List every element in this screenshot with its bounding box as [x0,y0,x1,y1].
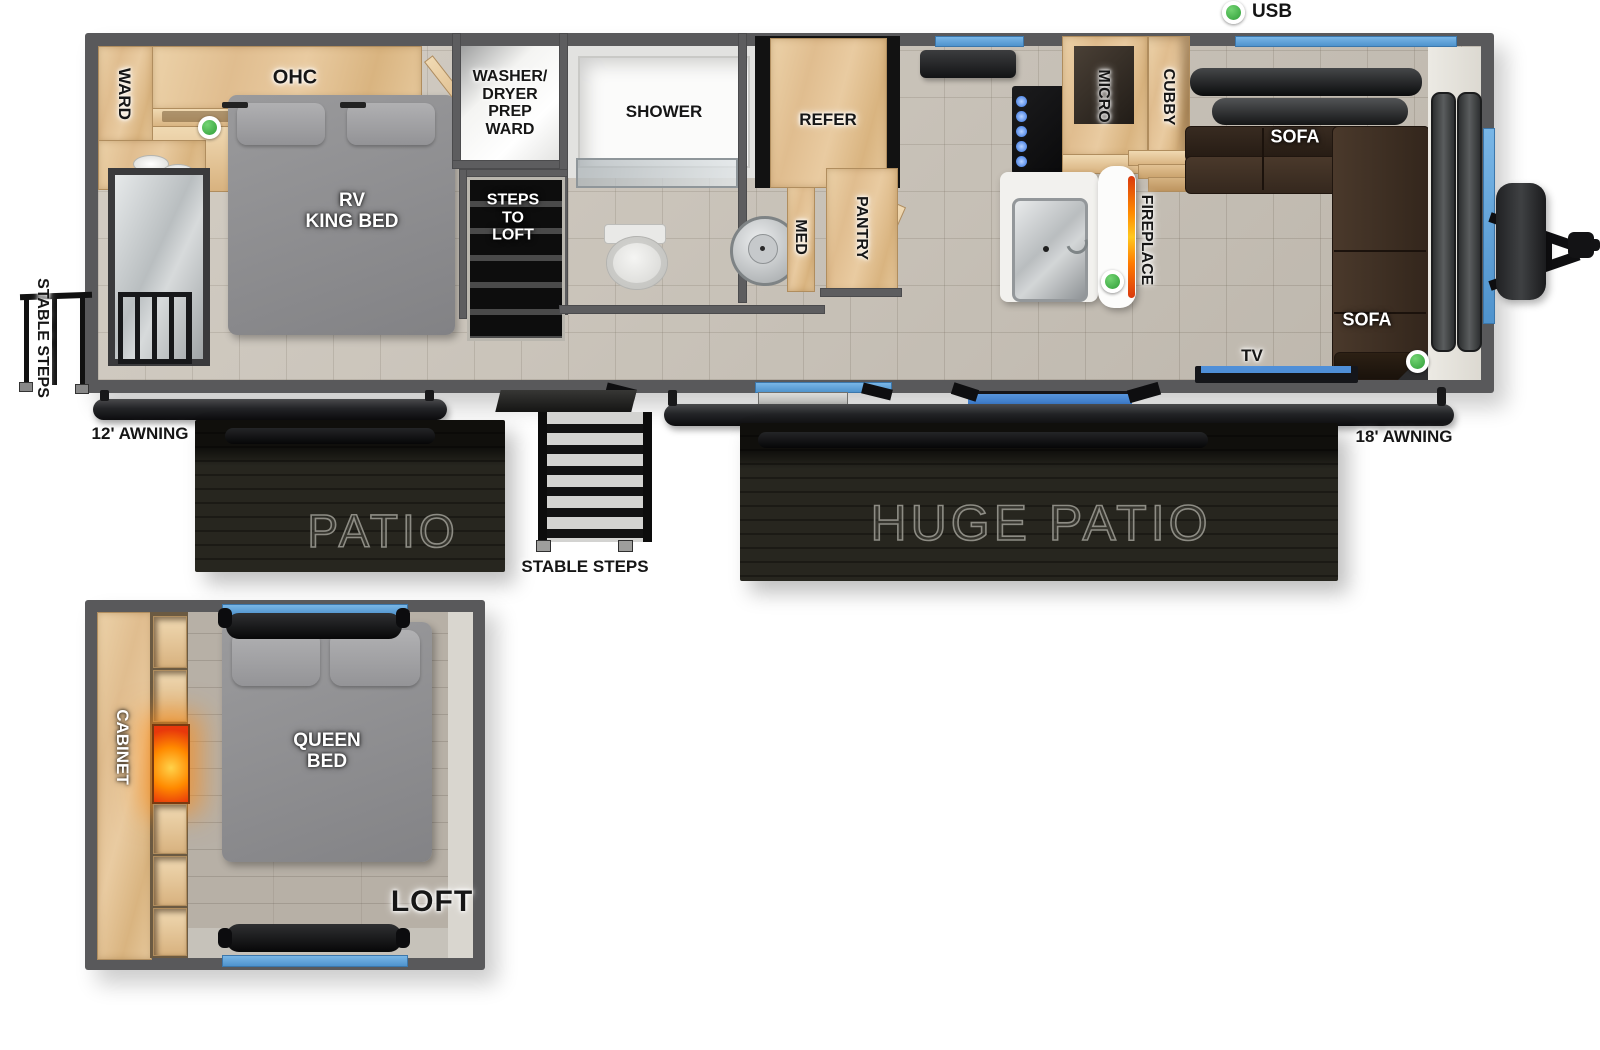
pillow [237,103,325,145]
sink-drain [1043,246,1049,252]
shower-glass [576,158,738,188]
front-panel [1431,92,1456,352]
toilet [606,236,668,290]
loft-top-rail [226,613,402,639]
loft-bottom-window [222,955,408,967]
floorplan-canvas: WARD OHC RVKING BED STABLE STEPS WASHER/… [0,0,1600,1050]
loft-fireplace [152,724,190,804]
wall [459,169,467,319]
bed-bracket [340,102,366,108]
loft-bottom-rail [226,924,402,952]
wall [459,169,568,177]
usb-indicator-dot [1101,270,1124,293]
front-window [1483,128,1495,324]
sofa-top-window [1235,36,1457,47]
kitchen-top-window [935,36,1024,47]
sink-drain [760,246,765,251]
window-shade [1190,68,1422,96]
window-shade [1212,98,1408,125]
cooktop-burner [1016,111,1027,122]
awning-bracket [668,390,677,406]
loft-shelf-cell [153,670,187,722]
rolled-awning [758,432,1208,448]
wall [452,33,461,169]
usb-indicator-dot [1406,350,1429,373]
cooktop-burner [1016,141,1027,152]
loft-shelf-cell [153,804,187,854]
awning-bracket [425,390,434,401]
rail-end [396,608,410,628]
rolled-awning [225,428,435,444]
awning-bracket [1437,387,1446,406]
interior-railing [118,292,192,364]
sectional-sofa-right [1332,126,1430,380]
loft-cabinet [97,612,152,960]
usb-indicator-dot [198,116,221,139]
rail-end [218,928,232,948]
cooktop-burner [1016,126,1027,137]
stable-steps-platform [495,390,636,412]
loft-shelf-cell [153,616,187,668]
loft-shelf-cell [153,856,187,906]
cushion-seam [1334,250,1426,252]
cushion-seam [1262,128,1264,190]
rail-end [396,928,410,948]
loft-shelf-cell [153,908,187,956]
fireplace-flame [1128,176,1135,298]
wall [559,305,825,314]
stable-steps-foot [618,540,633,552]
exterior-railing-post [80,296,85,384]
exterior-railing-post [52,295,57,385]
stable-steps-foot [536,540,551,552]
rail-end [218,608,232,628]
hitch-coupler-tip [1590,239,1600,251]
range-hood [920,50,1016,78]
pillow [347,103,435,145]
bed-bracket [222,102,248,108]
wall [820,288,902,297]
cooktop-burner [1016,96,1027,107]
stable-steps-stairs [538,412,652,542]
propane-cover [1496,183,1546,300]
cooktop-burner [1016,156,1027,167]
front-panel [1457,92,1482,352]
exterior-railing-foot [75,384,89,394]
wall [452,160,568,169]
awning-roller-12ft [93,399,447,420]
usb-legend-dot [1222,1,1245,24]
tv-screen [1201,366,1351,373]
awning-bracket [100,390,109,401]
exterior-railing-post [24,296,29,384]
exterior-railing-foot [19,382,33,392]
